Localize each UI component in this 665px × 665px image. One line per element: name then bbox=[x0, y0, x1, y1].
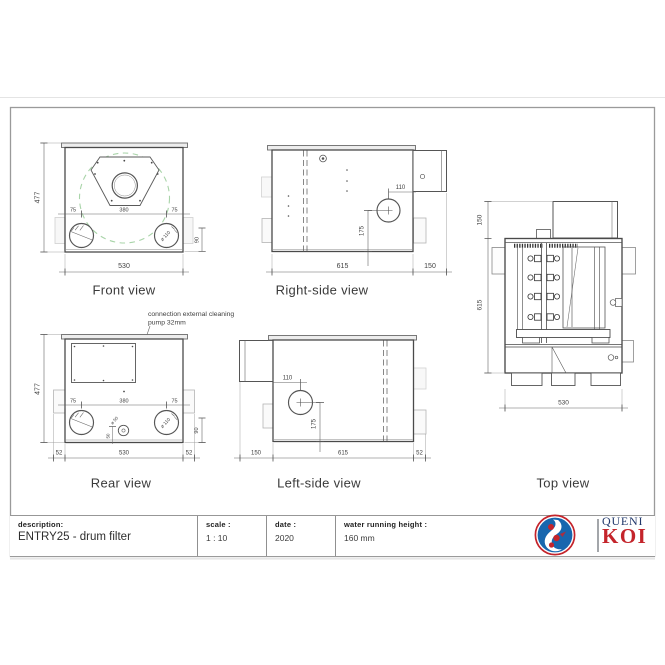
quenikoi-logo: QUENI KOI bbox=[534, 514, 653, 558]
left-lid bbox=[269, 336, 417, 341]
svg-text:380: 380 bbox=[119, 399, 128, 405]
logo-name-koi: KOI bbox=[602, 526, 652, 547]
right-side-view-label: Right-side view bbox=[276, 283, 369, 298]
svg-text:75: 75 bbox=[171, 399, 177, 405]
technical-drawing-svg: 75 380 75 ø 110 90 477 530 Front view bbox=[0, 0, 665, 665]
scale-value: 1 : 10 bbox=[206, 533, 266, 543]
svg-text:52: 52 bbox=[186, 451, 193, 457]
front-center-port bbox=[112, 173, 137, 198]
right-lid bbox=[268, 146, 416, 151]
rear-drain-port bbox=[118, 425, 128, 435]
rear-lid bbox=[62, 335, 188, 340]
svg-text:477: 477 bbox=[35, 383, 42, 395]
svg-text:52: 52 bbox=[56, 451, 63, 457]
svg-text:380: 380 bbox=[119, 208, 128, 214]
svg-text:90: 90 bbox=[194, 427, 200, 433]
svg-text:110: 110 bbox=[396, 185, 406, 191]
front-view-label: Front view bbox=[93, 283, 156, 298]
left-body bbox=[273, 340, 414, 442]
rear-view-label: Rear view bbox=[91, 476, 152, 491]
svg-text:615: 615 bbox=[477, 299, 484, 310]
rear-window bbox=[72, 344, 136, 383]
drawing-page: 75 380 75 ø 110 90 477 530 Front view bbox=[0, 0, 665, 665]
svg-text:150: 150 bbox=[424, 263, 436, 270]
logo-text: QUENI KOI bbox=[602, 515, 652, 547]
svg-text:615: 615 bbox=[337, 263, 349, 270]
svg-text:530: 530 bbox=[118, 263, 130, 270]
svg-text:477: 477 bbox=[35, 192, 42, 204]
svg-text:90: 90 bbox=[195, 237, 201, 243]
date-cell: date : 2020 bbox=[267, 516, 336, 556]
front-right-tab bbox=[183, 218, 193, 244]
date-label: date : bbox=[275, 520, 335, 529]
left-outlet-box bbox=[240, 341, 274, 382]
svg-text:52: 52 bbox=[416, 451, 423, 457]
svg-text:110: 110 bbox=[283, 376, 293, 382]
date-value: 2020 bbox=[275, 533, 335, 543]
svg-text:615: 615 bbox=[338, 451, 349, 457]
description-cell: description: ENTRY25 - drum filter bbox=[10, 516, 198, 556]
svg-text:530: 530 bbox=[119, 451, 130, 457]
koi-logo-icon bbox=[534, 514, 576, 556]
svg-text:150: 150 bbox=[251, 451, 262, 457]
svg-text:530: 530 bbox=[558, 400, 569, 407]
title-block: description: ENTRY25 - drum filter scale… bbox=[10, 515, 655, 556]
scale-label: scale : bbox=[206, 520, 266, 529]
svg-text:50: 50 bbox=[106, 433, 111, 438]
svg-text:150: 150 bbox=[477, 214, 484, 225]
svg-text:75: 75 bbox=[171, 208, 177, 214]
scale-cell: scale : 1 : 10 bbox=[198, 516, 267, 556]
top-view-label: Top view bbox=[537, 476, 590, 491]
front-left-tab bbox=[55, 218, 65, 244]
svg-text:75: 75 bbox=[70, 208, 76, 214]
svg-text:75: 75 bbox=[70, 399, 76, 405]
pump-annotation-line2: pump 32mm bbox=[148, 320, 186, 327]
description-value: ENTRY25 - drum filter bbox=[18, 531, 197, 543]
front-lid bbox=[62, 143, 188, 148]
svg-text:175: 175 bbox=[360, 225, 366, 236]
left-side-view-label: Left-side view bbox=[277, 476, 361, 491]
pump-annotation-line1: connection external cleaning bbox=[148, 311, 234, 318]
svg-text:175: 175 bbox=[312, 418, 318, 429]
top-outlet-box bbox=[553, 202, 618, 239]
description-label: description: bbox=[18, 520, 197, 529]
logo-divider bbox=[597, 519, 599, 552]
water-height-cell: water running height : 160 mm bbox=[336, 516, 655, 556]
